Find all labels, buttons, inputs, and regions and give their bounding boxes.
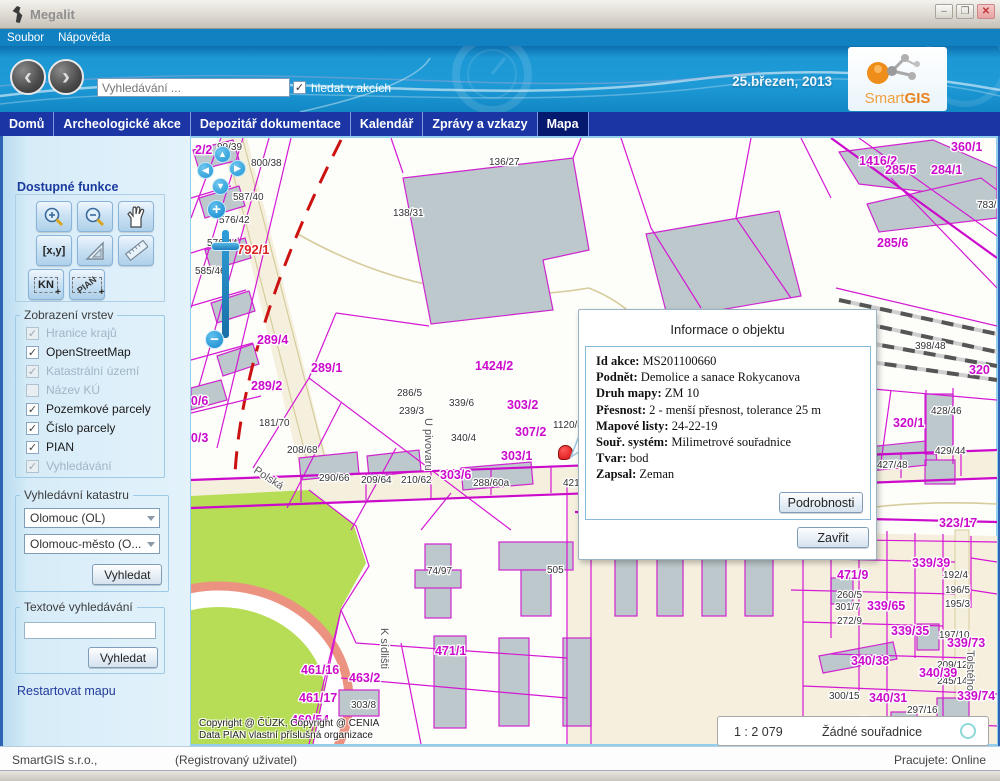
parcel-label: 461/16 — [301, 663, 339, 677]
parcel-label: 286/5 — [397, 388, 422, 399]
parcel-label: 471/1 — [435, 644, 466, 658]
hand-icon — [126, 206, 146, 228]
parcel-label: 303/8 — [351, 700, 376, 711]
object-info-popup: Informace o objektu Id akce: MS201100660… — [578, 309, 877, 560]
text-search-input[interactable] — [24, 622, 156, 639]
popup-field: Id akce: MS201100660 — [596, 353, 870, 369]
kn-button[interactable]: KN+ — [28, 269, 64, 300]
parcel-label: 307/2 — [515, 425, 546, 439]
popup-field: Podnět: Demolice a sanace Rokycanova — [596, 369, 870, 385]
popup-field: Souř. systém: Milimetrové souřadnice — [596, 434, 870, 450]
forward-button[interactable]: › — [48, 59, 84, 95]
parcel-label: 196/5 — [945, 585, 970, 596]
zoom-in-button[interactable] — [36, 201, 72, 232]
search-in-actions-checkbox[interactable]: ✓ — [293, 81, 306, 94]
cadastre-title: Vyhledávní katastru — [20, 488, 133, 502]
status-user: (Registrovaný uživatel) — [175, 753, 297, 767]
zoom-slider-plus-button[interactable]: + — [207, 200, 226, 219]
layer-label: PIAN — [46, 440, 74, 454]
popup-field: Druh mapy: ZM 10 — [596, 385, 870, 401]
nav-tab-1[interactable]: Archeologické akce — [54, 112, 190, 136]
sidebar: Dostupné funkce — [0, 136, 190, 746]
status-online: Pracujete: Online — [894, 753, 986, 767]
app-window: Megalit – ❐ ✕ Soubor Nápověda ‹ › ✓ hled… — [0, 0, 1000, 781]
layer-row-0: ✓Hranice krajů — [26, 325, 164, 341]
pan-left-button[interactable]: ◀ — [197, 162, 214, 179]
search-in-actions-label: hledat v akcích — [311, 81, 391, 95]
parcel-label: 339/74 — [957, 689, 995, 703]
parcel-label: 300/15 — [829, 691, 860, 702]
parcel-label: 272/9 — [837, 616, 862, 627]
cadastre-search-button[interactable]: Vyhledat — [92, 564, 162, 585]
layer-label: Číslo parcely — [46, 421, 115, 435]
parcel-label: 181/70 — [259, 418, 290, 429]
mouse-coordinates: Žádné souřadnice — [822, 725, 922, 739]
layer-label: Katastrální území — [46, 364, 139, 378]
cadastre-fieldset: Vyhledávní katastru Olomouc (OL) Olomouc… — [15, 488, 169, 592]
parcel-label: 398/48 — [915, 341, 946, 352]
statusbar: SmartGIS s.r.o., (Registrovaný uživatel)… — [0, 746, 1000, 770]
pian-icon: PIAN+ — [72, 277, 102, 293]
text-search-fieldset: Textové vyhledávání Vyhledat — [15, 600, 165, 674]
layer-row-1: ✓OpenStreetMap — [26, 344, 164, 360]
menubar: Soubor Nápověda — [0, 29, 1000, 46]
popup-title: Informace o objektu — [579, 322, 876, 337]
parcel-label: 800/6 — [191, 394, 208, 408]
current-date: 25.březen, 2013 — [732, 74, 832, 89]
layers-list: ✓Hranice krajů✓OpenStreetMap✓Katastrální… — [16, 325, 164, 474]
street-label: K sídlišti — [378, 628, 390, 669]
parcel-label: 340/38 — [851, 654, 889, 668]
popup-field: Tvar: bod — [596, 450, 870, 466]
smartgis-logo-text: SmartGIS — [848, 90, 947, 107]
ruler-icon — [124, 240, 148, 262]
parcel-label: 427/48 — [877, 460, 908, 471]
app-icon — [10, 6, 23, 23]
parcel-label: 210/62 — [401, 475, 432, 486]
search-input[interactable] — [97, 78, 290, 97]
smartgis-logo-graphic — [848, 47, 947, 91]
text-search-button[interactable]: Vyhledat — [88, 647, 158, 668]
parcel-label: 209/64 — [361, 475, 392, 486]
parcel-label: 339/65 — [867, 599, 905, 613]
parcel-label: 340/31 — [869, 691, 907, 705]
layer-row-2: ✓Katastrální území — [26, 363, 164, 379]
parcel-label: 340/4 — [451, 433, 476, 444]
map-scale: 1 : 2 079 — [734, 725, 783, 739]
parcel-label: 320 — [969, 363, 990, 377]
layer-checkbox[interactable]: ✓ — [26, 327, 39, 340]
parcel-label: 340/39 — [919, 666, 957, 680]
close-button[interactable]: ✕ — [977, 4, 995, 19]
zoom-slider-minus-button[interactable]: − — [205, 330, 224, 349]
pan-down-button[interactable]: ▼ — [212, 178, 229, 195]
pan-right-button[interactable]: ▶ — [229, 160, 246, 177]
parcel-label: 290/66 — [319, 473, 350, 484]
coordinates-indicator-icon — [960, 723, 976, 739]
parcel-label: 783/5 — [977, 200, 997, 211]
parcel-label: 195/3 — [945, 599, 970, 610]
main-nav: DomůArcheologické akceDepozitář dokument… — [0, 112, 1000, 136]
pan-up-button[interactable]: ▲ — [214, 146, 231, 163]
zoom-out-icon — [84, 206, 106, 228]
parcel-label: 461/17 — [299, 691, 337, 705]
layer-row-3: Název KÚ — [26, 382, 164, 398]
layer-label: Pozemkové parcely — [46, 402, 151, 416]
parcel-label: 239/3 — [399, 406, 424, 417]
restart-map-link[interactable]: Restartovat mapu — [17, 684, 116, 698]
window-bottom-frame — [0, 770, 1000, 781]
parcel-label: 339/6 — [449, 398, 474, 409]
layer-checkbox[interactable]: ✓ — [26, 346, 39, 359]
layers-title: Zobrazení vrstev — [20, 308, 117, 322]
parcel-label: 587/40 — [233, 192, 264, 203]
parcel-label: 260/5 — [837, 590, 862, 601]
measure-button[interactable] — [118, 235, 154, 266]
text-search-title: Textové vyhledávání — [20, 600, 137, 614]
parcel-label: 471/9 — [837, 568, 868, 582]
pian-button[interactable]: PIAN+ — [69, 269, 105, 300]
map-copyright: Copyright @ ČÚZK, Copyright @ CENIA Data… — [199, 718, 379, 741]
nav-tab-3[interactable]: Kalendář — [351, 112, 424, 136]
zoom-slider-handle[interactable] — [211, 242, 240, 251]
street-label: Tolstého — [964, 650, 976, 691]
layer-checkbox[interactable]: ✓ — [26, 441, 39, 454]
chevron-down-icon — [147, 516, 155, 521]
popup-field: Mapové listy: 24-22-19 — [596, 418, 870, 434]
parcel-label: 289/1 — [311, 361, 342, 375]
parcel-label: 429/44 — [935, 446, 966, 457]
parcel-label: 136/27 — [489, 157, 520, 168]
maximize-button[interactable]: ❐ — [956, 4, 974, 19]
cadastre-region-select[interactable]: Olomouc (OL) — [24, 508, 160, 528]
parcel-label: 463/2 — [349, 671, 380, 685]
menu-napoveda[interactable]: Nápověda — [51, 32, 117, 44]
chevron-down-icon — [147, 542, 155, 547]
parcel-label: 576/42 — [219, 215, 250, 226]
parcel-label: 192/4 — [943, 570, 968, 581]
parcel-label: 800/38 — [251, 158, 282, 169]
parcel-label: 285/5 — [885, 163, 916, 177]
back-button[interactable]: ‹ — [10, 59, 46, 95]
pan-button[interactable] — [118, 201, 154, 232]
close-popup-button[interactable]: Zavřit — [797, 527, 869, 548]
parcel-label: 323/17 — [939, 516, 977, 530]
window-title: Megalit — [30, 7, 75, 22]
parcel-label: 339/39 — [912, 556, 950, 570]
status-company: SmartGIS s.r.o., — [12, 753, 97, 767]
setsquare-icon — [84, 240, 106, 262]
parcel-label: 320/1 — [893, 416, 924, 430]
parcel-label: 792/1 — [237, 242, 270, 257]
layer-checkbox[interactable] — [26, 384, 39, 397]
nav-tab-4[interactable]: Zprávy a vzkazy — [423, 112, 537, 136]
details-button[interactable]: Podrobnosti — [779, 492, 863, 513]
layer-row-7: ✓Vyhledávání — [26, 458, 164, 474]
popup-body: Id akce: MS201100660Podnět: Demolice a s… — [585, 346, 871, 520]
minimize-button[interactable]: – — [935, 4, 953, 19]
parcel-label: 800/3 — [191, 431, 208, 445]
parcel-label: 1424/2 — [475, 359, 513, 373]
parcel-label: 303/2 — [507, 398, 538, 412]
parcel-label: 288/60a — [473, 478, 510, 489]
parcel-label: 208/68 — [287, 445, 318, 456]
parcel-label: 289/4 — [257, 333, 288, 347]
nav-tab-2[interactable]: Depozitář dokumentace — [191, 112, 351, 136]
layer-row-5: ✓Číslo parcely — [26, 420, 164, 436]
xy-icon: [x,y] — [43, 245, 66, 257]
zoom-out-button[interactable] — [77, 201, 113, 232]
parcel-label: 301/7 — [835, 602, 860, 613]
parcel-label: 285/6 — [877, 236, 908, 250]
layer-checkbox[interactable]: ✓ — [26, 365, 39, 378]
layer-row-4: ✓Pozemkové parcely — [26, 401, 164, 417]
parcel-label: 303/6 — [440, 468, 471, 482]
parcel-label: 74/97 — [427, 566, 452, 577]
parcel-label: 505 — [547, 565, 564, 576]
layer-label: Název KÚ — [46, 383, 100, 397]
coordinates-button[interactable]: [x,y] — [36, 235, 72, 266]
layers-fieldset: Zobrazení vrstev ✓Hranice krajů✓OpenStre… — [15, 308, 165, 478]
layer-checkbox[interactable]: ✓ — [26, 422, 39, 435]
titlebar: Megalit – ❐ ✕ — [0, 0, 1000, 29]
parcel-label: 303/1 — [501, 449, 532, 463]
layer-label: Hranice krajů — [46, 326, 117, 340]
cadastre-area-select[interactable]: Olomouc-město (O... — [24, 534, 160, 554]
layer-checkbox[interactable]: ✓ — [26, 460, 39, 473]
parcel-label: 297/16 — [907, 705, 938, 716]
kn-icon: KN+ — [34, 277, 58, 293]
parcel-label: 138/31 — [393, 208, 424, 219]
smartgis-logo: SmartGIS — [848, 47, 947, 111]
nav-tab-5[interactable]: Mapa — [538, 112, 589, 136]
parcel-label: 339/35 — [891, 624, 929, 638]
scale-box: 1 : 2 079 Žádné souřadnice — [717, 716, 989, 746]
popup-field: Zapsal: Zeman — [596, 466, 870, 482]
parcel-label: 2/2 — [195, 143, 212, 157]
layer-checkbox[interactable]: ✓ — [26, 403, 39, 416]
parcel-label: 339/73 — [947, 636, 985, 650]
header: ‹ › ✓ hledat v akcích 25.březen, 2013 Sm… — [0, 46, 1000, 112]
functions-title: Dostupné funkce — [17, 180, 118, 194]
menu-soubor[interactable]: Soubor — [0, 32, 51, 44]
parcel-label: 289/2 — [251, 379, 282, 393]
parcel-label: 428/46 — [931, 406, 962, 417]
parcel-label: 360/1 — [951, 140, 982, 154]
street-label: U pivovaru — [422, 418, 434, 471]
zoom-in-icon — [43, 206, 65, 228]
layer-label: Vyhledávání — [46, 459, 112, 473]
layer-row-6: ✓PIAN — [26, 439, 164, 455]
popup-field: Přesnost: 2 - menší přesnost, tolerance … — [596, 402, 870, 418]
parcel-label: 284/1 — [931, 163, 962, 177]
setsquare-button[interactable] — [77, 235, 113, 266]
nav-tab-0[interactable]: Domů — [0, 112, 54, 136]
tools-panel: [x,y] — [15, 194, 165, 302]
layer-label: OpenStreetMap — [46, 345, 131, 359]
